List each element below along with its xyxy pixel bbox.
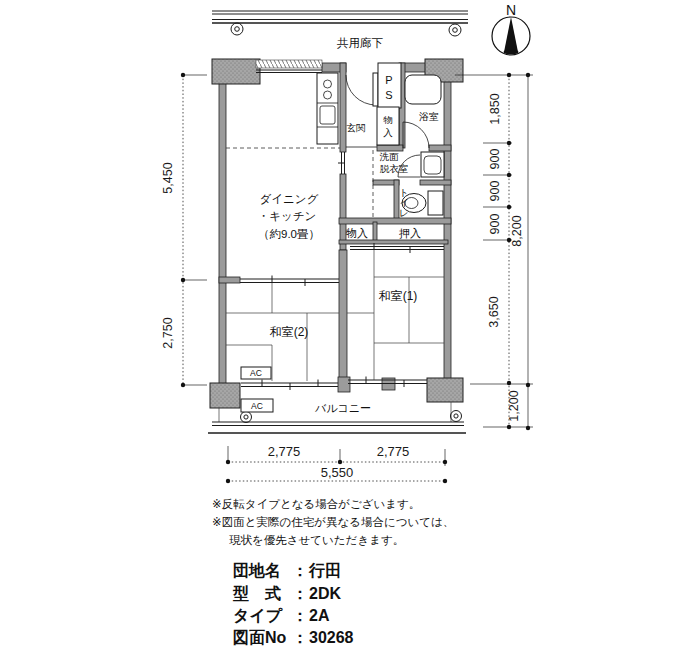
info-value-danchi: 行田 [308, 562, 341, 579]
dim-right-total: 8,200 [510, 215, 524, 246]
room-label-ps-p: P [385, 74, 392, 86]
dim-right-6: 1,200 [507, 390, 521, 421]
info-row-zumen-no: 図面No ： 30268 [233, 629, 354, 646]
room-label-mono-genkan-1: 物 [383, 114, 393, 125]
info-sep: ： [292, 607, 308, 624]
ac-room-label: AC [250, 368, 262, 378]
info-value-type: 2A [309, 607, 330, 624]
info-label-type: タイプ [233, 607, 283, 624]
info-label-zumen-no: 図面No [233, 629, 287, 646]
corridor-label: 共用廊下 [336, 37, 384, 49]
ac-unit-balcony: AC [241, 399, 273, 412]
washitsu2-balcony-window [241, 380, 338, 391]
info-row-danchi: 団地名 ： 行田 [233, 562, 341, 579]
downspout-icon [451, 411, 462, 422]
corridor-railing [212, 11, 468, 36]
room-label-oshiire: 押入 [399, 227, 421, 239]
info-row-katashiki: 型 式 ： 2DK [232, 585, 341, 602]
floorplan-drawing: 共用廊下 N [0, 0, 700, 650]
downspout-icon [241, 412, 252, 423]
north-label: N [506, 2, 516, 18]
info-row-type: タイプ ： 2A [233, 607, 330, 624]
room-label-washitsu1: 和室(1) [379, 289, 418, 303]
note-line-1: ※反転タイプとなる場合がございます。 [212, 498, 420, 511]
room-label-dk-2: ・キッチン [258, 210, 317, 222]
bath-door [403, 122, 429, 148]
info-sep: ： [292, 585, 308, 602]
info-value-zumen-no: 30268 [309, 629, 354, 646]
info-value-katashiki: 2DK [309, 585, 341, 602]
downspout-icon [231, 23, 243, 35]
note-line-3: 現状を優先させていただきます。 [229, 534, 404, 547]
info-sep: ： [292, 629, 308, 646]
bathtub-icon [405, 75, 441, 104]
pillar [427, 378, 463, 402]
room-label-senmen-2: 脱衣室 [380, 163, 409, 174]
tatami-lines-washitsu1 [347, 250, 444, 380]
room-label-ps-s: S [385, 89, 392, 101]
washbasin-icon [421, 152, 444, 177]
floorplan-page: 共用廊下 N [0, 0, 700, 650]
pillar [210, 383, 240, 408]
note-line-2: ※図面と実際の住宅が異なる場合については、 [212, 516, 454, 528]
dim-bottom-total: 5,550 [321, 465, 354, 480]
ac-balcony-label: AC [251, 401, 263, 411]
dim-right-4: 900 [488, 214, 502, 235]
room-label-dk-3: （約9.0畳） [258, 228, 320, 240]
downspout-icon [449, 24, 461, 36]
room-label-senmen-1: 洗面 [380, 151, 400, 162]
dim-bottom: 2,775 2,775 5,550 [226, 444, 447, 483]
info-label-danchi: 団地名 [233, 562, 281, 579]
north-arrow-icon [492, 17, 530, 55]
room-label-genkan: 玄関 [347, 122, 366, 133]
room-label-washitsu2: 和室(2) [270, 325, 309, 339]
room-label-toilet-3: レ [399, 207, 409, 218]
pillar [212, 59, 260, 84]
room-label-mono-genkan-2: 入 [383, 127, 393, 138]
kitchen-window [256, 60, 322, 73]
dim-right-5: 3,650 [487, 296, 501, 327]
dim-left-upper: 5,450 [161, 162, 175, 193]
dim-right: 1,850 900 900 900 3,650 1,200 8,200 [455, 73, 533, 430]
dk-washitsu2-fusuma [240, 276, 339, 287]
dim-right-3: 900 [488, 181, 502, 202]
dim-right-1: 1,850 [488, 93, 502, 124]
room-label-balcony: バルコニー [314, 402, 371, 414]
dim-left: 5,450 2,750 [161, 73, 207, 387]
oshiire-fusuma [350, 243, 444, 253]
entrance-closet-box [377, 107, 399, 145]
room-label-dk-1: ダイニング [260, 193, 319, 205]
room-label-bath: 浴室 [419, 111, 439, 122]
dim-bottom-left: 2,775 [268, 444, 301, 459]
dk-hall-sliding-door [338, 152, 345, 174]
entrance-door [346, 73, 378, 106]
room-label-mono-center: 物入 [346, 227, 368, 239]
info-sep: ： [292, 562, 308, 579]
dim-right-2: 900 [488, 149, 502, 170]
kitchen-counter [317, 73, 338, 144]
ac-unit-room: AC [241, 367, 271, 379]
dim-left-lower: 2,750 [161, 317, 175, 348]
info-label-katashiki: 型 式 [232, 585, 281, 602]
dim-bottom-right: 2,775 [377, 444, 410, 459]
